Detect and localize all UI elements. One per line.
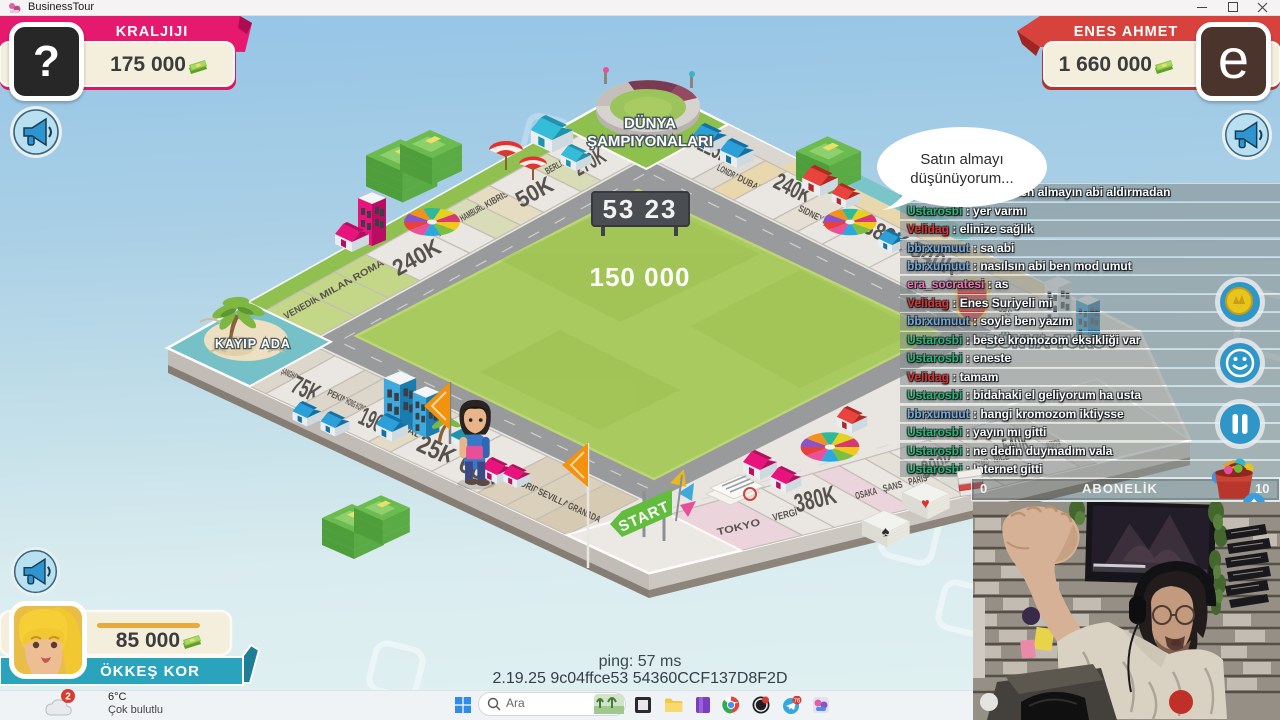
svg-text:76: 76 — [794, 699, 801, 705]
svg-text:KAYIP ADA: KAYIP ADA — [215, 337, 291, 351]
svg-text:2: 2 — [65, 692, 71, 703]
svg-text:150 000: 150 000 — [590, 262, 691, 292]
svg-text:ŞAMPIYONALARI: ŞAMPIYONALARI — [587, 133, 713, 150]
svg-text:1 660 000: 1 660 000 — [1059, 53, 1152, 76]
svg-text:85 000: 85 000 — [116, 629, 180, 652]
svg-text:ENES AHMET: ENES AHMET — [1074, 24, 1179, 40]
svg-text:♥: ♥ — [921, 496, 931, 513]
svg-text:♠: ♠ — [881, 524, 890, 541]
svg-text:DÜNYA: DÜNYA — [624, 115, 676, 132]
svg-text:ÖKKEŞ KOR: ÖKKEŞ KOR — [100, 663, 200, 680]
svg-text:KRALJIJI: KRALJIJI — [116, 24, 188, 40]
svg-text:53 23: 53 23 — [602, 194, 677, 224]
svg-text:175 000: 175 000 — [110, 53, 186, 76]
